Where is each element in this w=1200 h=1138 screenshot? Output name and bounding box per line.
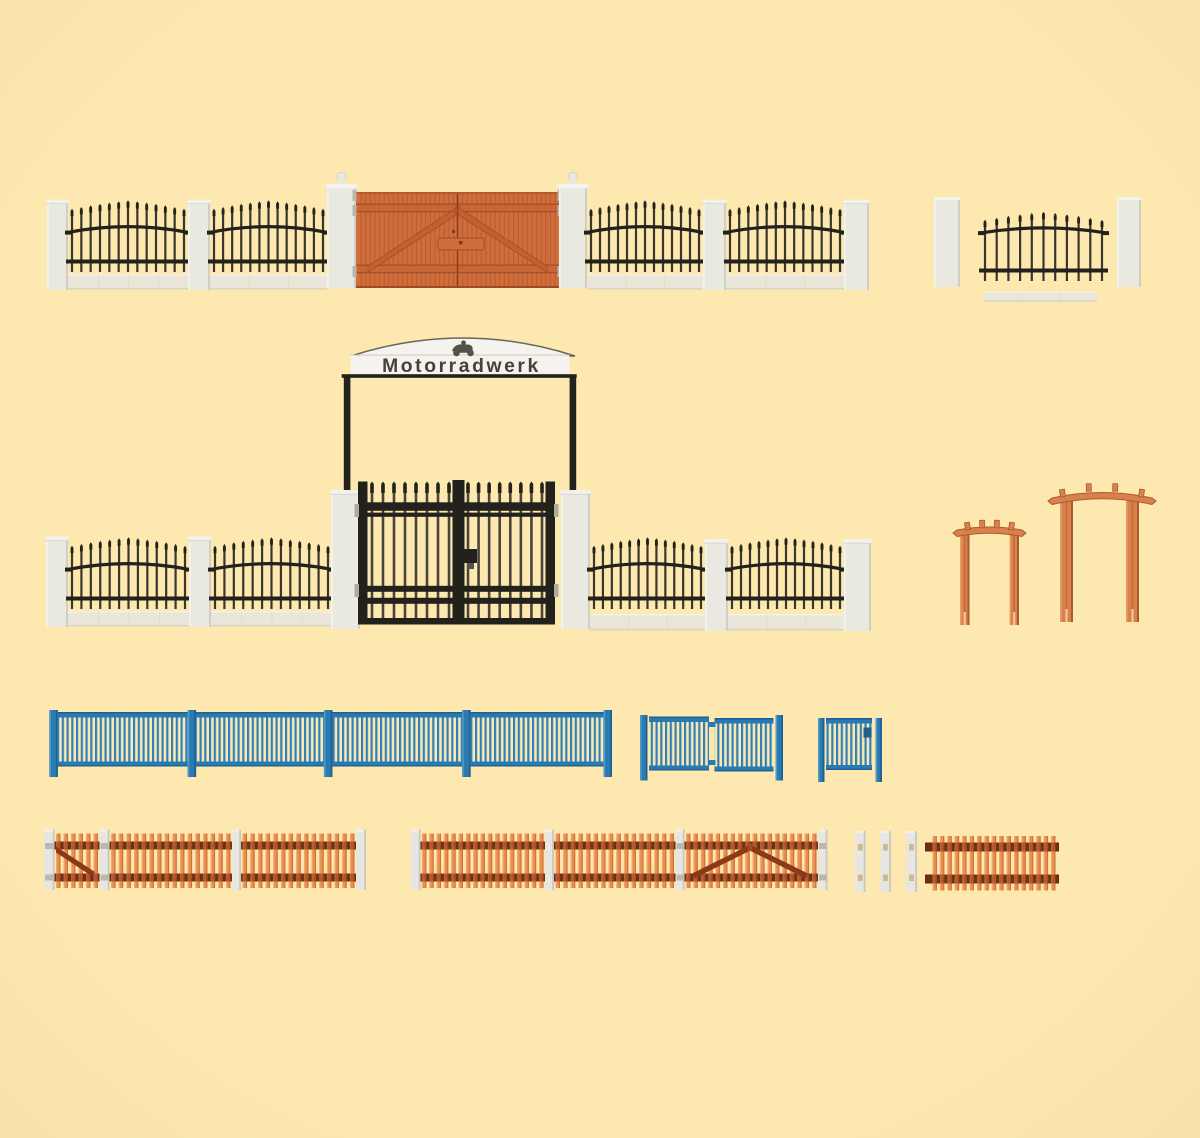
svg-text:Motorradwerk: Motorradwerk [382, 356, 541, 377]
